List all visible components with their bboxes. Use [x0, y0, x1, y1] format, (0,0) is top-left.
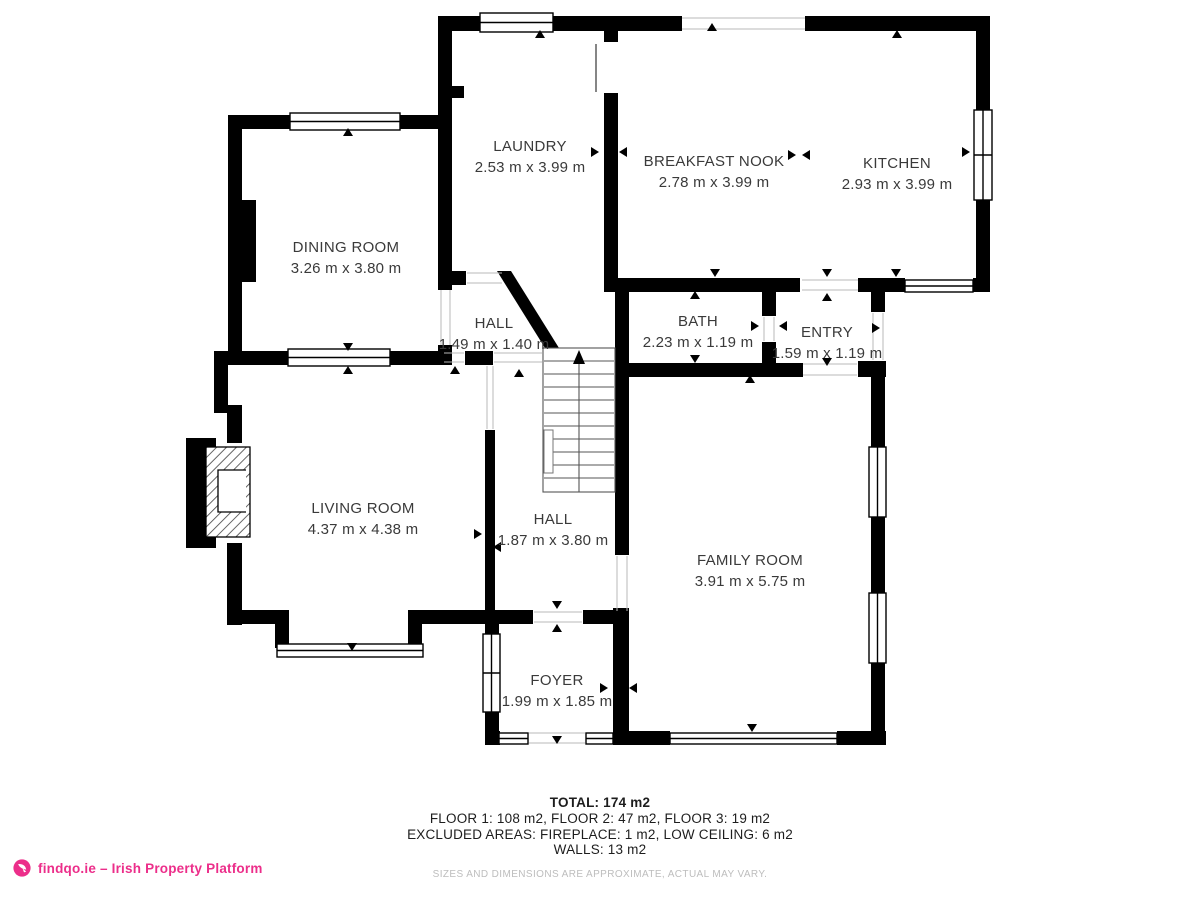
room-name: LIVING ROOM	[308, 498, 419, 519]
fireplace	[206, 447, 250, 537]
room-dims: 2.78 m x 3.99 m	[644, 172, 785, 193]
room-label-hall-lower: HALL 1.87 m x 3.80 m	[498, 509, 609, 551]
room-label-bath: BATH 2.23 m x 1.19 m	[643, 311, 754, 353]
summary-walls: WALLS: 13 m2	[0, 842, 1200, 858]
room-label-family-room: FAMILY ROOM 3.91 m x 5.75 m	[695, 550, 806, 592]
room-label-breakfast-nook: BREAKFAST NOOK 2.78 m x 3.99 m	[644, 151, 785, 193]
summary-excluded: EXCLUDED AREAS: FIREPLACE: 1 m2, LOW CEI…	[0, 827, 1200, 843]
summary-total: TOTAL: 174 m2	[0, 795, 1200, 811]
room-name: FAMILY ROOM	[695, 550, 806, 571]
room-label-hall-upper: HALL 1.49 m x 1.40 m	[439, 313, 550, 355]
room-dims: 3.26 m x 3.80 m	[291, 258, 402, 279]
room-name: BATH	[643, 311, 754, 332]
room-name: HALL	[439, 313, 550, 334]
room-label-foyer: FOYER 1.99 m x 1.85 m	[502, 670, 613, 712]
room-dims: 1.49 m x 1.40 m	[439, 334, 550, 355]
room-label-dining-room: DINING ROOM 3.26 m x 3.80 m	[291, 237, 402, 279]
room-label-kitchen: KITCHEN 2.93 m x 3.99 m	[842, 153, 953, 195]
room-name: LAUNDRY	[475, 136, 586, 157]
room-name: KITCHEN	[842, 153, 953, 174]
findqo-logo-icon	[13, 859, 31, 877]
room-dims: 3.91 m x 5.75 m	[695, 571, 806, 592]
floor-plan-page: LAUNDRY 2.53 m x 3.99 m BREAKFAST NOOK 2…	[0, 0, 1200, 900]
room-dims: 1.59 m x 1.19 m	[772, 343, 883, 364]
staircase	[543, 348, 615, 492]
summary-floors: FLOOR 1: 108 m2, FLOOR 2: 47 m2, FLOOR 3…	[0, 811, 1200, 827]
room-dims: 4.37 m x 4.38 m	[308, 519, 419, 540]
room-dims: 2.23 m x 1.19 m	[643, 332, 754, 353]
opening-sill-lines	[441, 18, 883, 743]
room-label-laundry: LAUNDRY 2.53 m x 3.99 m	[475, 136, 586, 178]
room-dims: 2.93 m x 3.99 m	[842, 174, 953, 195]
room-dims: 1.99 m x 1.85 m	[502, 691, 613, 712]
room-dims: 1.87 m x 3.80 m	[498, 530, 609, 551]
room-name: ENTRY	[772, 322, 883, 343]
room-label-living-room: LIVING ROOM 4.37 m x 4.38 m	[308, 498, 419, 540]
brand-footer: findqo.ie – Irish Property Platform	[13, 859, 263, 877]
room-name: HALL	[498, 509, 609, 530]
room-dims: 2.53 m x 3.99 m	[475, 157, 586, 178]
floor-plan-drawing	[0, 0, 1200, 900]
room-name: DINING ROOM	[291, 237, 402, 258]
brand-text: findqo.ie – Irish Property Platform	[38, 861, 263, 876]
room-label-entry: ENTRY 1.59 m x 1.19 m	[772, 322, 883, 364]
room-name: BREAKFAST NOOK	[644, 151, 785, 172]
room-name: FOYER	[502, 670, 613, 691]
